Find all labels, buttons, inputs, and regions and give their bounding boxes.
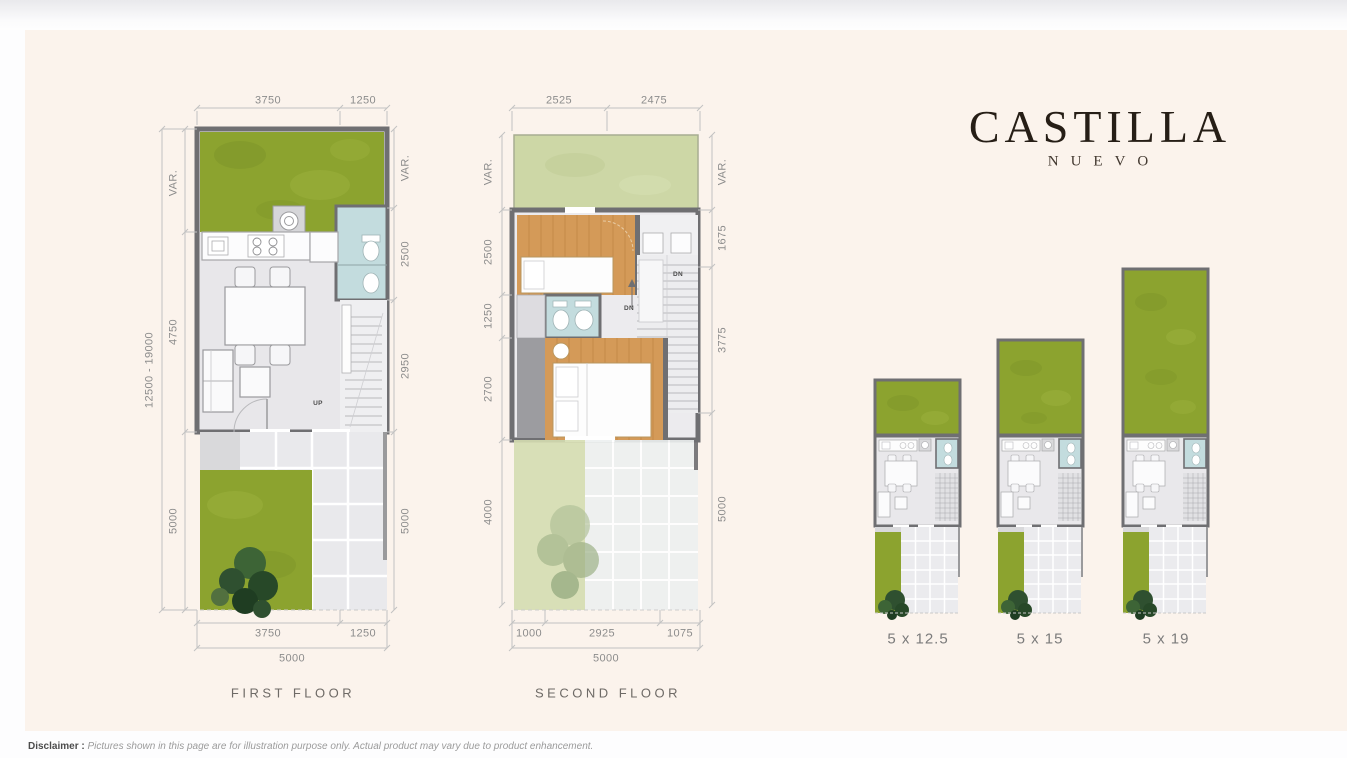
pillow (556, 401, 578, 431)
dim-label: 2475 (641, 96, 667, 107)
variant-plan-5x15 (996, 338, 1085, 622)
second-floor-title: SECOND FLOOR (535, 687, 681, 700)
dim-label: VAR. (169, 170, 180, 196)
master-bedroom (545, 338, 667, 440)
sink-icon (363, 273, 379, 293)
dim-label: 1000 (516, 629, 542, 640)
dim-label: 1250 (484, 303, 495, 329)
stove-icon (248, 235, 284, 257)
yard-below (514, 440, 698, 610)
dim-label: 1250 (350, 629, 376, 640)
balcony-door-gap (565, 207, 595, 213)
variant-label-5x19: 5 x 19 (1143, 632, 1190, 647)
dim-label: 4750 (169, 319, 180, 345)
first-floor-title: FIRST FLOOR (231, 687, 355, 700)
pillow (556, 367, 578, 397)
first-floor-plan (150, 95, 440, 675)
dim-label: 2700 (484, 376, 495, 402)
pillow (524, 261, 544, 289)
dim-label: 5000 (401, 508, 412, 534)
kitchen (202, 232, 338, 262)
sink-icon (553, 310, 569, 330)
dim-label: 5000 (593, 654, 619, 665)
bathroom-2 (545, 295, 600, 338)
stair-down-label: DN (624, 306, 634, 313)
variant-label-5x12.5: 5 x 12.5 (887, 632, 948, 647)
disclaimer-label: Disclaimer : (28, 741, 85, 752)
disclaimer-text: Pictures shown in this page are for illu… (87, 741, 593, 752)
closet (517, 295, 545, 338)
stairs-up (340, 300, 387, 432)
logo-subtitle: NUEVO (1048, 155, 1161, 170)
nightstand (553, 343, 569, 359)
dim-label: 4000 (484, 499, 495, 525)
dim-label: 2950 (401, 353, 412, 379)
page-top-gradient (0, 0, 1347, 30)
variant-plan-5x19 (1121, 267, 1210, 622)
dim-label: 2525 (546, 96, 572, 107)
dim-label: 3775 (718, 327, 729, 353)
roof-garden (514, 135, 698, 210)
dim-label: 2500 (484, 239, 495, 265)
toilet-icon (575, 310, 593, 330)
toilet-icon (363, 241, 379, 261)
dim-label: 1075 (667, 629, 693, 640)
wardrobe (517, 338, 545, 438)
bathroom (336, 206, 387, 300)
dim-label: 5000 (279, 654, 305, 665)
disclaimer: Disclaimer : Pictures shown in this page… (28, 741, 593, 752)
dim-label: 5000 (169, 508, 180, 534)
coffee-table (240, 367, 270, 397)
second-floor-building (512, 207, 698, 442)
dim-label: 5000 (718, 496, 729, 522)
logo-title: CASTILLA (969, 104, 1231, 150)
variant-label-5x15: 5 x 15 (1017, 632, 1064, 647)
bedroom-1 (517, 215, 635, 295)
dim-label: VAR. (718, 159, 729, 185)
dim-label: 3750 (255, 96, 281, 107)
upstairs-hall (640, 215, 698, 255)
sofa (203, 350, 233, 412)
dim-label: 3750 (255, 629, 281, 640)
dim-label: VAR. (401, 155, 412, 181)
stair-down-label: DN (673, 272, 683, 279)
stair-up-label: UP (313, 401, 323, 408)
dim-label: 12500 - 19000 (145, 332, 156, 408)
dim-label: VAR. (484, 159, 495, 185)
brochure-page: 3750 1250 12500 - 19000 VAR. 4750 5000 V… (0, 0, 1347, 758)
dim-label: 2925 (589, 629, 615, 640)
variant-plan-5x12.5 (873, 378, 962, 622)
second-floor-plan (465, 95, 755, 675)
front-yard (200, 432, 387, 618)
dim-label: 1675 (718, 225, 729, 251)
first-floor-building (197, 129, 387, 435)
dim-label: 1250 (350, 96, 376, 107)
dim-label: 2500 (401, 241, 412, 267)
